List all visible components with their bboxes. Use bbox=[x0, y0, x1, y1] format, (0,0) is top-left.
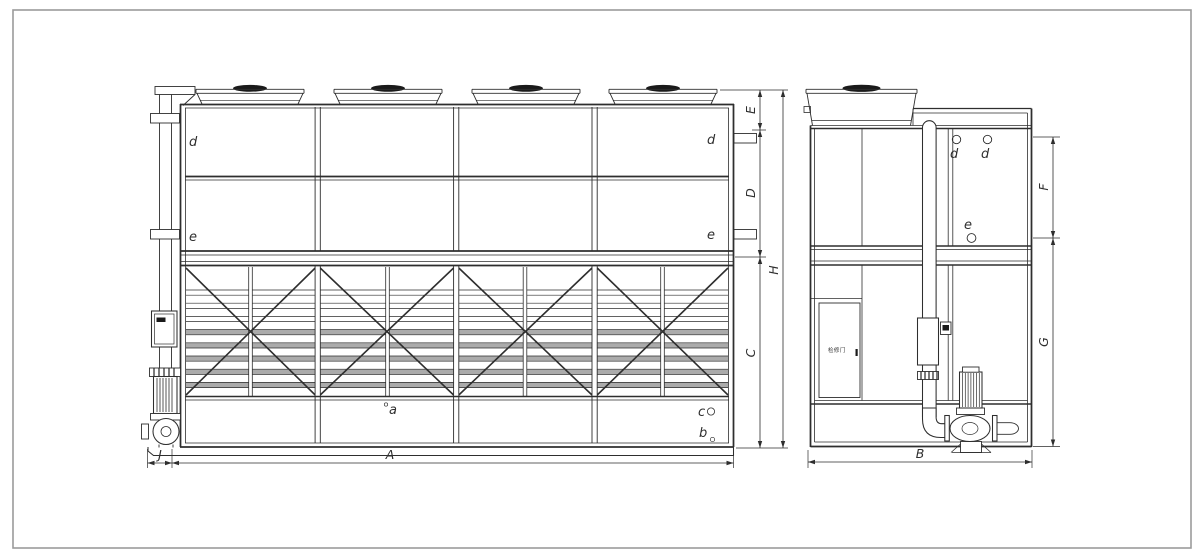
door-label: 检修门 bbox=[828, 346, 846, 354]
fan-stack-3 bbox=[472, 85, 580, 104]
dim-label-G: G bbox=[1036, 337, 1051, 347]
label-c: c bbox=[698, 405, 705, 420]
dim-label-C: C bbox=[743, 348, 758, 357]
dim-label-E: E bbox=[743, 106, 758, 114]
point-b-mark bbox=[710, 437, 714, 441]
connection-stubs bbox=[734, 134, 757, 240]
dim-label-B: B bbox=[916, 446, 925, 461]
door-handle bbox=[856, 349, 858, 356]
riser-pipe-side bbox=[918, 121, 952, 438]
fan-stacks bbox=[196, 85, 717, 104]
fan-stack-side bbox=[804, 85, 917, 126]
connection-d-rear-mark bbox=[983, 135, 991, 143]
pipe-flange-upper bbox=[151, 114, 180, 124]
label-d-right: d bbox=[707, 133, 716, 148]
label-e-left: e bbox=[189, 230, 197, 245]
side-view: 检修门 bbox=[804, 85, 1060, 468]
dim-label-D: D bbox=[743, 188, 758, 198]
fan-stack-1 bbox=[196, 85, 304, 104]
stub-e bbox=[734, 230, 757, 240]
front-view: d e d e a c b E D bbox=[142, 85, 789, 468]
pump-motor-front bbox=[151, 377, 181, 421]
dim-label-A: A bbox=[385, 447, 395, 462]
pump-suction-flange bbox=[945, 416, 950, 442]
fan-stack-4 bbox=[609, 85, 717, 104]
control-box bbox=[152, 311, 178, 347]
pipe-flange-lower bbox=[151, 230, 180, 240]
front-labels: d e d e a c b bbox=[189, 133, 716, 442]
pump-side bbox=[945, 367, 1019, 453]
label-e-side: e bbox=[964, 218, 972, 233]
point-a-mark bbox=[384, 403, 387, 406]
connection-d-front-mark bbox=[952, 135, 960, 143]
technical-drawing: d e d e a c b E D bbox=[0, 0, 1200, 559]
dim-label-H: H bbox=[766, 265, 781, 275]
access-door: 检修门 bbox=[811, 299, 863, 398]
label-e-right: e bbox=[707, 228, 715, 243]
stub-d bbox=[734, 134, 757, 144]
dim-label-F: F bbox=[1036, 183, 1051, 191]
connection-e-mark bbox=[967, 234, 976, 243]
label-d-rear: d bbox=[981, 147, 990, 162]
point-c-mark bbox=[707, 408, 714, 415]
pipe-elbow bbox=[923, 408, 946, 438]
pump-pedestal bbox=[961, 442, 982, 453]
label-d-left: d bbox=[189, 135, 198, 150]
pipe-sensor-box bbox=[941, 322, 952, 335]
label-b: b bbox=[699, 426, 707, 441]
fan-stack-2 bbox=[334, 85, 442, 104]
label-d-front: d bbox=[950, 147, 959, 162]
pump-discharge-flange bbox=[993, 416, 998, 442]
front-dimensions: E D C H A J bbox=[148, 90, 789, 468]
pump-motor-side bbox=[957, 367, 985, 415]
side-casing bbox=[811, 109, 1032, 448]
drawing-sheet: d e d e a c b E D bbox=[0, 0, 1200, 559]
structural-columns bbox=[315, 107, 597, 443]
side-labels: d d e bbox=[950, 135, 992, 242]
base-rail bbox=[148, 447, 734, 456]
pump-volute bbox=[950, 416, 990, 442]
pipe-filter bbox=[918, 318, 939, 365]
dim-label-J: J bbox=[155, 447, 162, 462]
label-a: a bbox=[389, 403, 397, 418]
pump-volute-front bbox=[142, 419, 180, 448]
